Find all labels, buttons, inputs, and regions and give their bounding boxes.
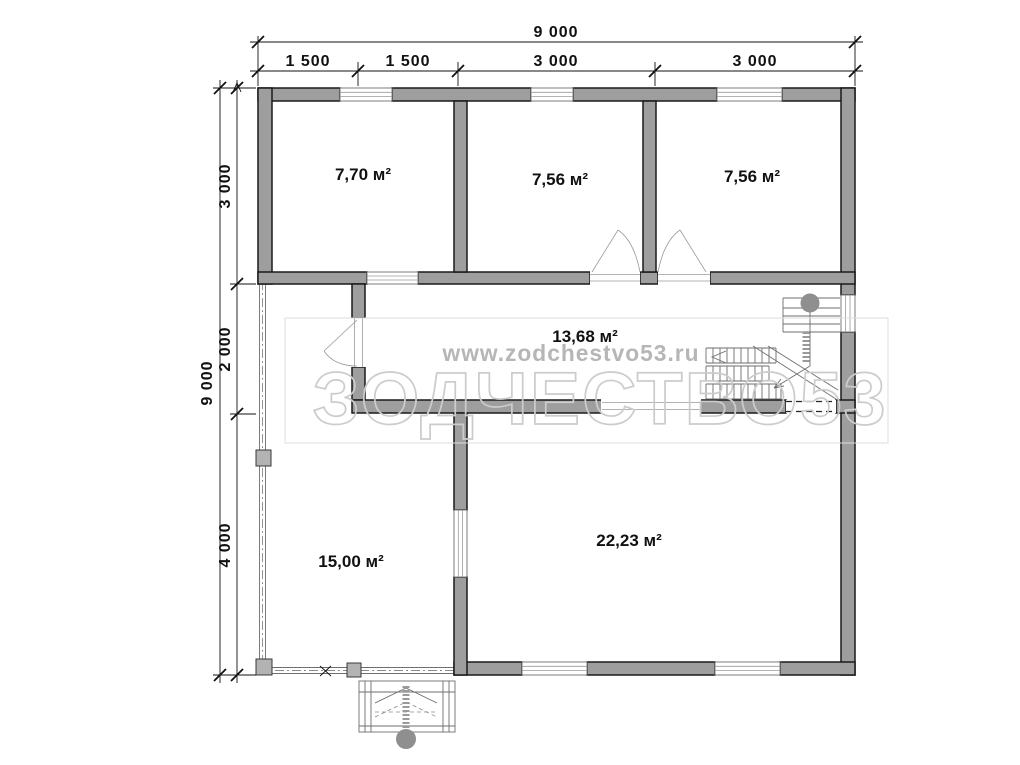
dim-left-seg-1: 3 000: [217, 163, 234, 208]
window: [717, 88, 782, 101]
dim-top-total: 9 000: [533, 24, 578, 41]
terrace-post: [347, 663, 361, 677]
dim-left-total: 9 000: [199, 360, 216, 405]
terrace-post: [256, 450, 271, 466]
room-area-label-top-right: 7,56 м²: [724, 167, 780, 186]
top-dimensions: 9 000 1 500 1 500 3 000 3 000: [250, 24, 863, 86]
terrace-post: [256, 659, 272, 675]
floor-plan-canvas: www.zodchestvo53.ru ЗОДЧЕСТВО53 7,70 м² …: [0, 0, 1020, 765]
window: [715, 662, 780, 675]
dim-left-seg-3: 4 000: [217, 522, 234, 567]
room-area-label-top-middle: 7,56 м²: [532, 170, 588, 189]
room-area-label-terrace: 15,00 м²: [318, 552, 384, 571]
dim-left-seg-2: 2 000: [217, 326, 234, 371]
window: [454, 510, 467, 577]
dim-top-seg-3: 3 000: [533, 53, 578, 70]
watermark-brand: ЗОДЧЕСТВО53: [313, 357, 888, 440]
column-marker: [396, 729, 416, 749]
room-area-label-top-left: 7,70 м²: [335, 165, 391, 184]
room-area-label-hall: 13,68 м²: [552, 327, 618, 346]
window: [841, 295, 855, 332]
left-dimensions: 9 000 3 000 2 000 4 000: [199, 80, 256, 683]
door: [658, 230, 710, 285]
window: [340, 88, 392, 101]
dim-top-seg-2: 1 500: [385, 53, 430, 70]
column-marker: [801, 294, 820, 313]
dim-top-seg-1: 1 500: [285, 53, 330, 70]
entry-steps: [359, 681, 455, 749]
window: [367, 272, 418, 284]
window: [522, 662, 587, 675]
window: [531, 88, 573, 101]
floor-plan-page: www.zodchestvo53.ru ЗОДЧЕСТВО53 7,70 м² …: [0, 0, 1020, 765]
dim-top-seg-4: 3 000: [732, 53, 777, 70]
door: [590, 230, 640, 285]
room-area-label-living: 22,23 м²: [596, 531, 662, 550]
